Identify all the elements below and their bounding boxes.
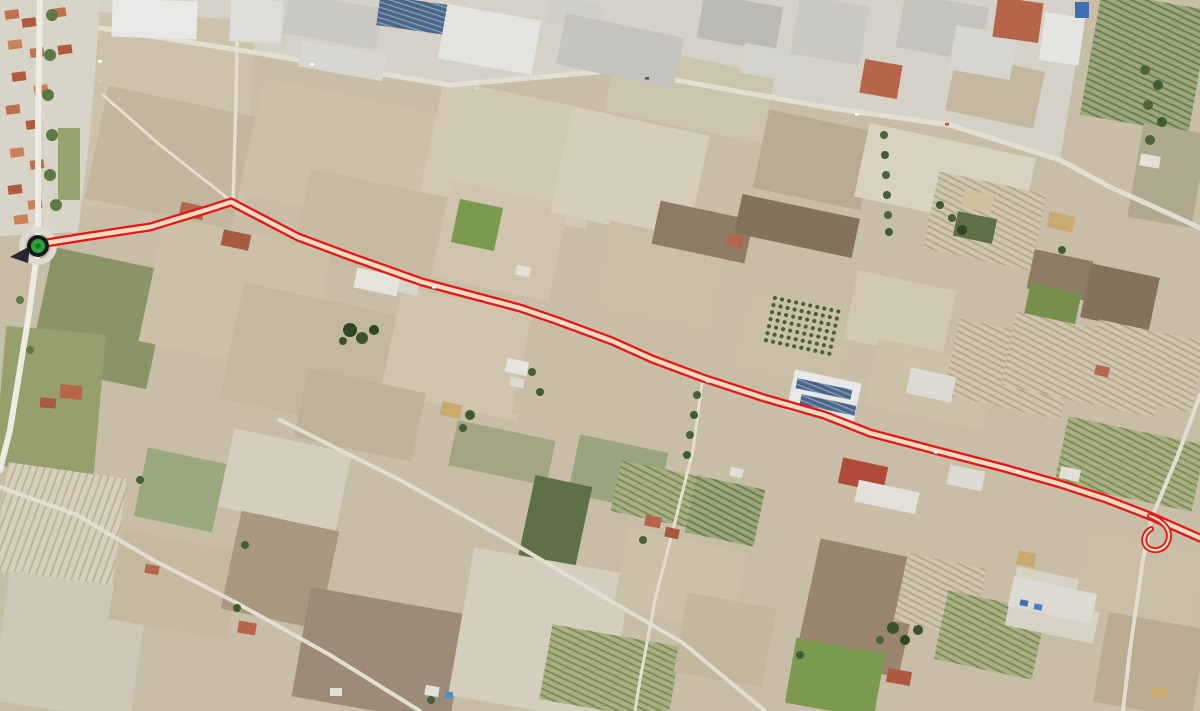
start-marker-core xyxy=(35,243,40,248)
tree xyxy=(639,536,647,544)
car xyxy=(560,322,564,325)
tree xyxy=(26,346,34,354)
car xyxy=(98,60,102,63)
car xyxy=(706,380,710,383)
aerial-imagery-canvas xyxy=(0,0,1200,711)
car xyxy=(934,451,938,454)
tree xyxy=(913,625,923,635)
field-parcel xyxy=(1093,612,1200,711)
field-parcel xyxy=(1080,0,1200,134)
building xyxy=(1039,12,1085,65)
car xyxy=(310,63,314,66)
tree xyxy=(900,635,910,645)
tree xyxy=(44,169,56,181)
tree xyxy=(885,228,893,236)
tree xyxy=(369,325,379,335)
tree xyxy=(42,89,54,101)
tree xyxy=(1140,65,1150,75)
tree xyxy=(356,332,368,344)
tree xyxy=(683,451,691,459)
car xyxy=(1016,470,1020,473)
car xyxy=(855,113,859,116)
building xyxy=(859,59,902,99)
tree xyxy=(880,131,888,139)
tree xyxy=(1058,246,1066,254)
tree xyxy=(1145,135,1155,145)
tree xyxy=(343,323,357,337)
field-parcel xyxy=(0,462,127,588)
tree xyxy=(44,49,56,61)
tree xyxy=(339,337,347,345)
car xyxy=(645,77,649,80)
tree xyxy=(46,129,58,141)
building xyxy=(330,688,342,696)
car xyxy=(945,123,949,126)
building xyxy=(229,0,282,43)
tree xyxy=(876,636,884,644)
field-parcel xyxy=(674,593,777,687)
building xyxy=(1075,2,1089,18)
car xyxy=(432,286,436,289)
tree xyxy=(957,225,967,235)
car xyxy=(98,80,102,83)
tree xyxy=(46,9,58,21)
tree xyxy=(1143,100,1153,110)
tree xyxy=(690,411,698,419)
tree xyxy=(881,151,889,159)
tree xyxy=(465,410,475,420)
tree xyxy=(796,651,804,659)
tree xyxy=(884,211,892,219)
building xyxy=(445,692,453,698)
town-park xyxy=(58,128,80,200)
building xyxy=(1152,688,1168,698)
tree xyxy=(1157,117,1167,127)
tree xyxy=(16,296,24,304)
tree xyxy=(459,424,467,432)
tree xyxy=(882,171,890,179)
tree xyxy=(136,476,144,484)
tree xyxy=(1153,80,1163,90)
tree xyxy=(883,191,891,199)
tree xyxy=(936,201,944,209)
tree xyxy=(536,388,544,396)
tree xyxy=(948,214,956,222)
field-parcel xyxy=(451,199,503,251)
tree xyxy=(50,199,62,211)
building xyxy=(111,0,197,39)
tree xyxy=(528,368,536,376)
tree xyxy=(233,604,241,612)
tree xyxy=(887,622,899,634)
building xyxy=(992,0,1043,43)
car xyxy=(475,87,479,90)
tree xyxy=(686,431,694,439)
tree xyxy=(427,696,435,704)
building xyxy=(59,384,82,400)
building xyxy=(40,397,57,408)
tree xyxy=(241,541,249,549)
tree xyxy=(693,391,701,399)
satellite-map-view xyxy=(0,0,1200,711)
